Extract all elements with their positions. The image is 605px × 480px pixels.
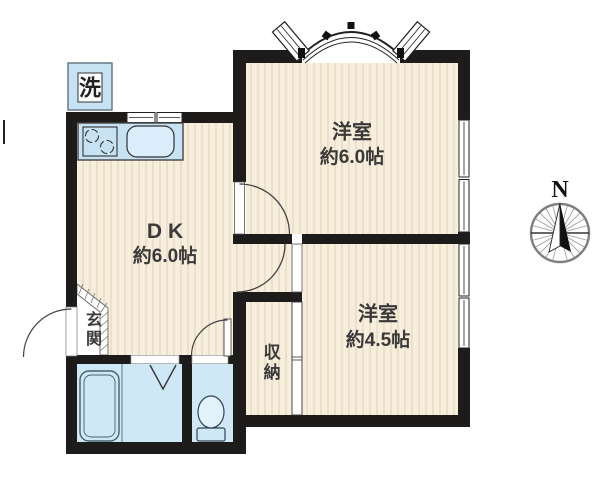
room2-label: 洋室 <box>358 303 398 328</box>
laundry-label: 洗 <box>79 74 101 102</box>
floorplan-svg <box>0 0 605 480</box>
room2-size: 約4.5帖 <box>346 329 410 353</box>
kitchen-sink <box>127 126 174 157</box>
bath-door-opening <box>131 356 179 364</box>
dk-label: DK <box>141 219 189 245</box>
floorplan-page: 洋室 約6.0帖 洋室 約4.5帖 DK 約6.0帖 収納 玄関 洗 N <box>0 0 605 480</box>
room2-door-opening <box>292 244 302 292</box>
room1-size: 約6.0帖 <box>320 146 384 170</box>
bow-window <box>272 22 429 63</box>
entrance-door-opening <box>66 307 77 356</box>
dk-size: 約6.0帖 <box>133 245 197 269</box>
entrance-label: 玄関 <box>81 311 101 349</box>
toilet-door-leaf <box>224 319 231 356</box>
toilet-bowl <box>198 396 224 428</box>
compass-north-label: N <box>551 175 568 205</box>
kitchen-counter <box>78 123 183 160</box>
storage-sliding-door <box>292 302 302 415</box>
floor-bathroom <box>77 364 182 442</box>
room1-door-leaf <box>235 182 245 234</box>
room1-label: 洋室 <box>332 121 372 146</box>
storage-label: 収納 <box>259 343 280 383</box>
toilet-door-opening <box>192 356 228 364</box>
entrance-door-arc <box>24 309 72 357</box>
compass-icon <box>531 203 589 262</box>
edge-artifact-line <box>3 120 5 144</box>
